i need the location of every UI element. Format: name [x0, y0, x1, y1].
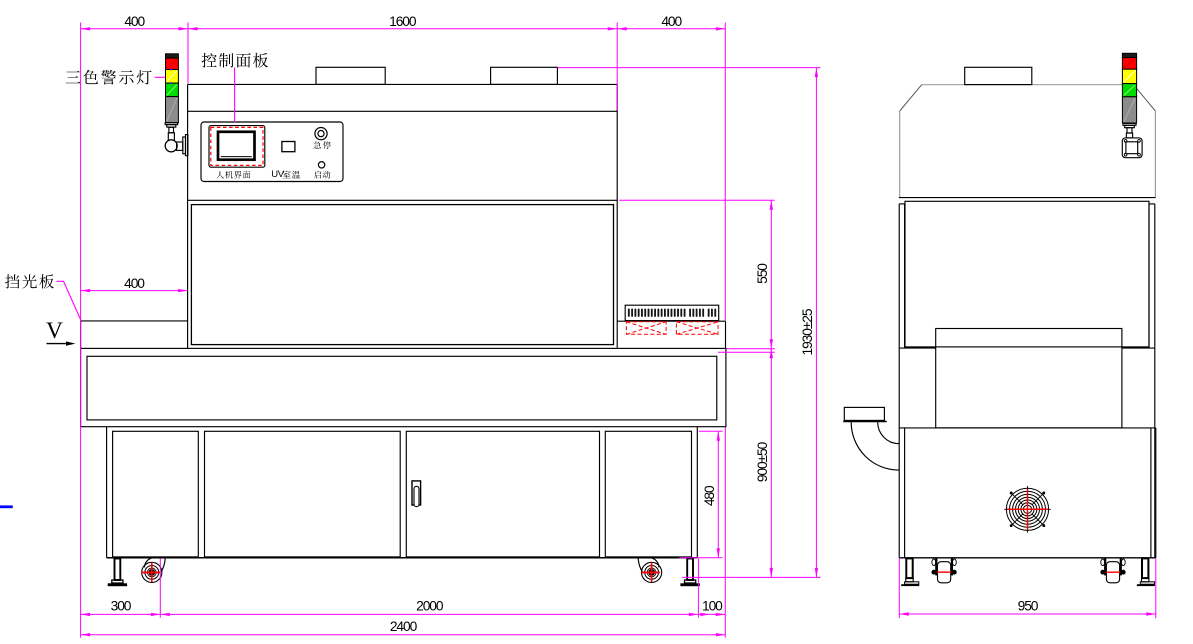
svg-text:900±50: 900±50	[755, 441, 770, 482]
svg-text:100: 100	[702, 598, 723, 613]
svg-text:480: 480	[702, 485, 717, 506]
svg-text:400: 400	[124, 276, 145, 291]
svg-text:1600: 1600	[389, 14, 417, 29]
svg-text:400: 400	[661, 14, 682, 29]
svg-text:2400: 2400	[390, 619, 418, 634]
svg-text:V: V	[46, 318, 63, 344]
svg-text:400: 400	[124, 14, 145, 29]
svg-text:300: 300	[111, 598, 132, 613]
svg-text:950: 950	[1018, 598, 1039, 613]
svg-text:UV: UV	[271, 169, 284, 180]
svg-text:1930±25: 1930±25	[800, 308, 815, 355]
svg-text:550: 550	[755, 263, 770, 284]
svg-text:2000: 2000	[416, 598, 444, 613]
